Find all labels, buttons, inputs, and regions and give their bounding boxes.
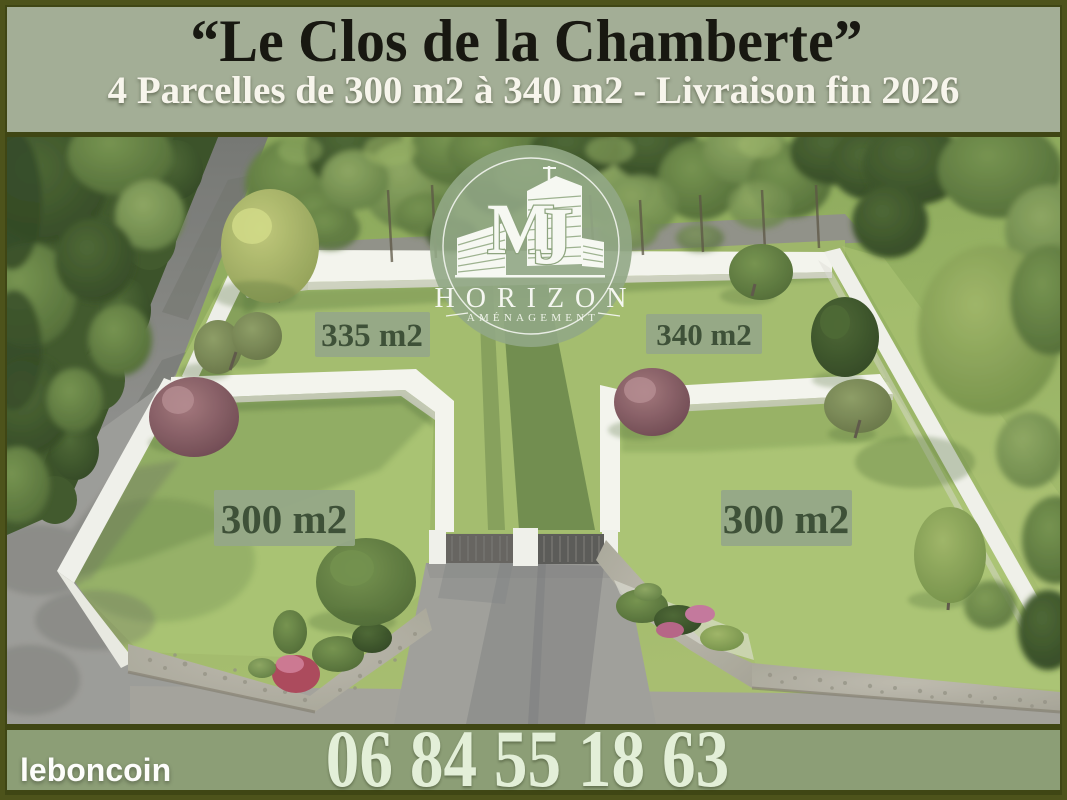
- svg-text:300 m2: 300 m2: [221, 496, 347, 542]
- svg-text:335 m2: 335 m2: [321, 318, 423, 354]
- svg-text:AMÉNAGEMENT: AMÉNAGEMENT: [467, 312, 599, 324]
- svg-text:340 m2: 340 m2: [656, 317, 752, 352]
- svg-text:J: J: [533, 190, 574, 281]
- svg-text:300 m2: 300 m2: [723, 496, 849, 542]
- svg-text:HORIZON: HORIZON: [435, 283, 638, 314]
